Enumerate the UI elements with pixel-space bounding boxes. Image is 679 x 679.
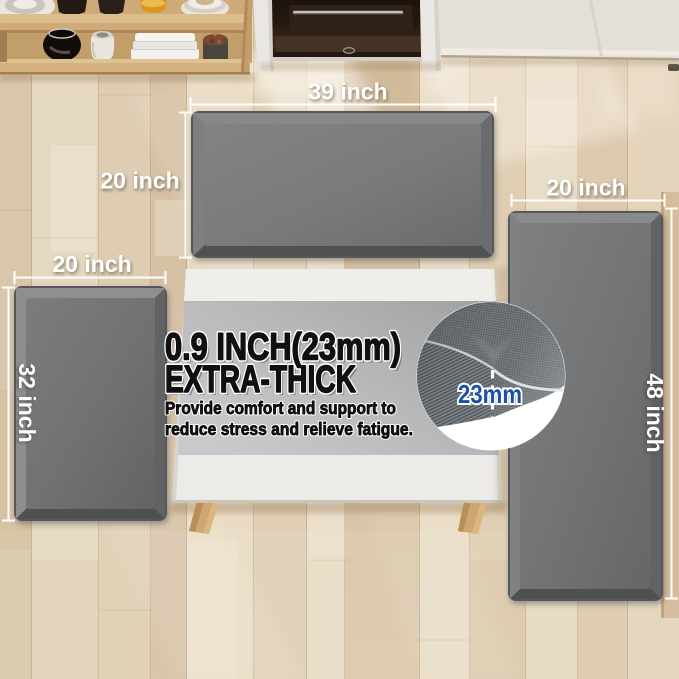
svg-text:reduce stress and relieve fati: reduce stress and relieve fatigue. [165, 419, 413, 439]
svg-text:23mm: 23mm [458, 379, 522, 409]
svg-text:Provide comfort and support to: Provide comfort and support to [165, 398, 396, 418]
svg-text:39 inch: 39 inch [308, 79, 387, 105]
svg-text:32 inch: 32 inch [14, 363, 40, 442]
svg-text:EXTRA-THICK: EXTRA-THICK [165, 359, 356, 401]
svg-text:20 inch: 20 inch [546, 175, 625, 201]
svg-text:20 inch: 20 inch [100, 168, 179, 194]
svg-text:48 inch: 48 inch [642, 373, 668, 452]
svg-text:20 inch: 20 inch [52, 251, 131, 277]
